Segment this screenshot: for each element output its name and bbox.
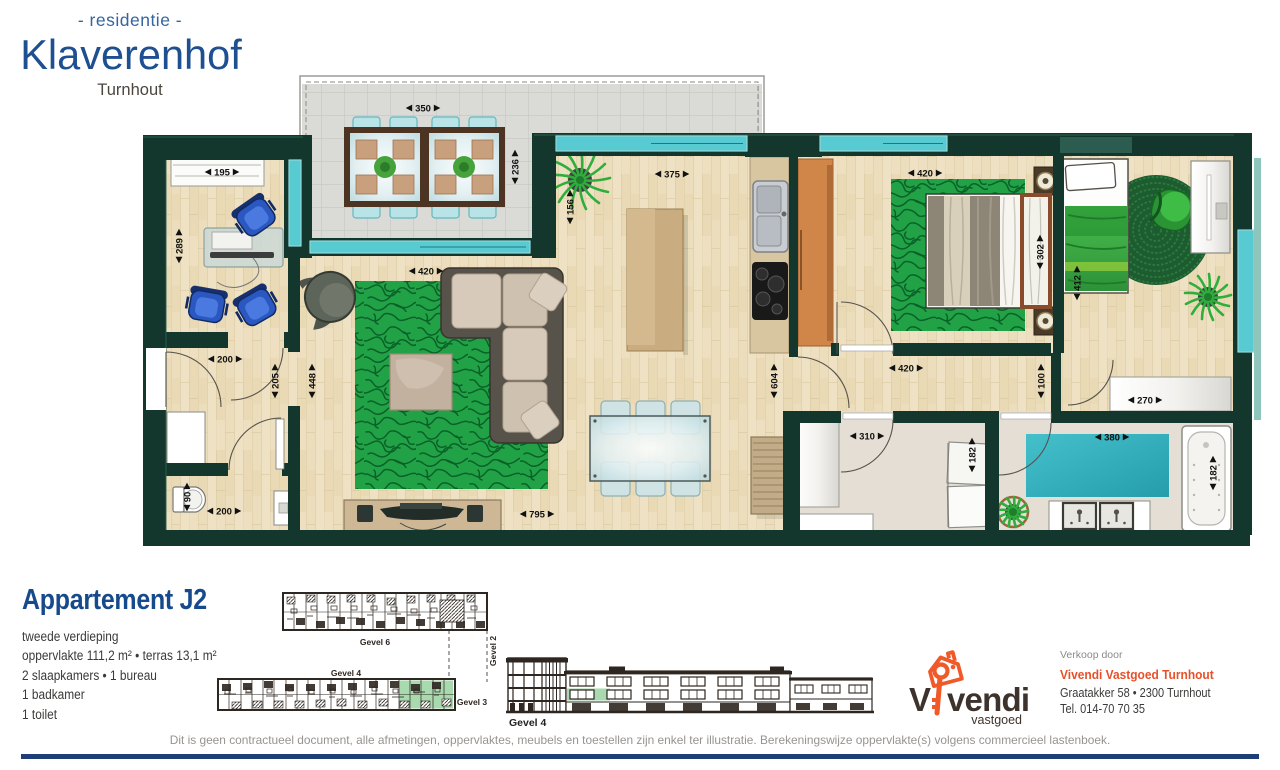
svg-text:Gevel 2: Gevel 2 <box>488 636 498 667</box>
svg-text:Gevel 4: Gevel 4 <box>509 717 547 729</box>
svg-text:Gevel 6: Gevel 6 <box>360 637 391 647</box>
svg-text:Gevel 4: Gevel 4 <box>331 668 362 678</box>
svg-text:V: V <box>909 681 931 718</box>
svg-text:Gevel 3: Gevel 3 <box>457 697 488 707</box>
svg-text:vastgoed: vastgoed <box>971 713 1022 727</box>
